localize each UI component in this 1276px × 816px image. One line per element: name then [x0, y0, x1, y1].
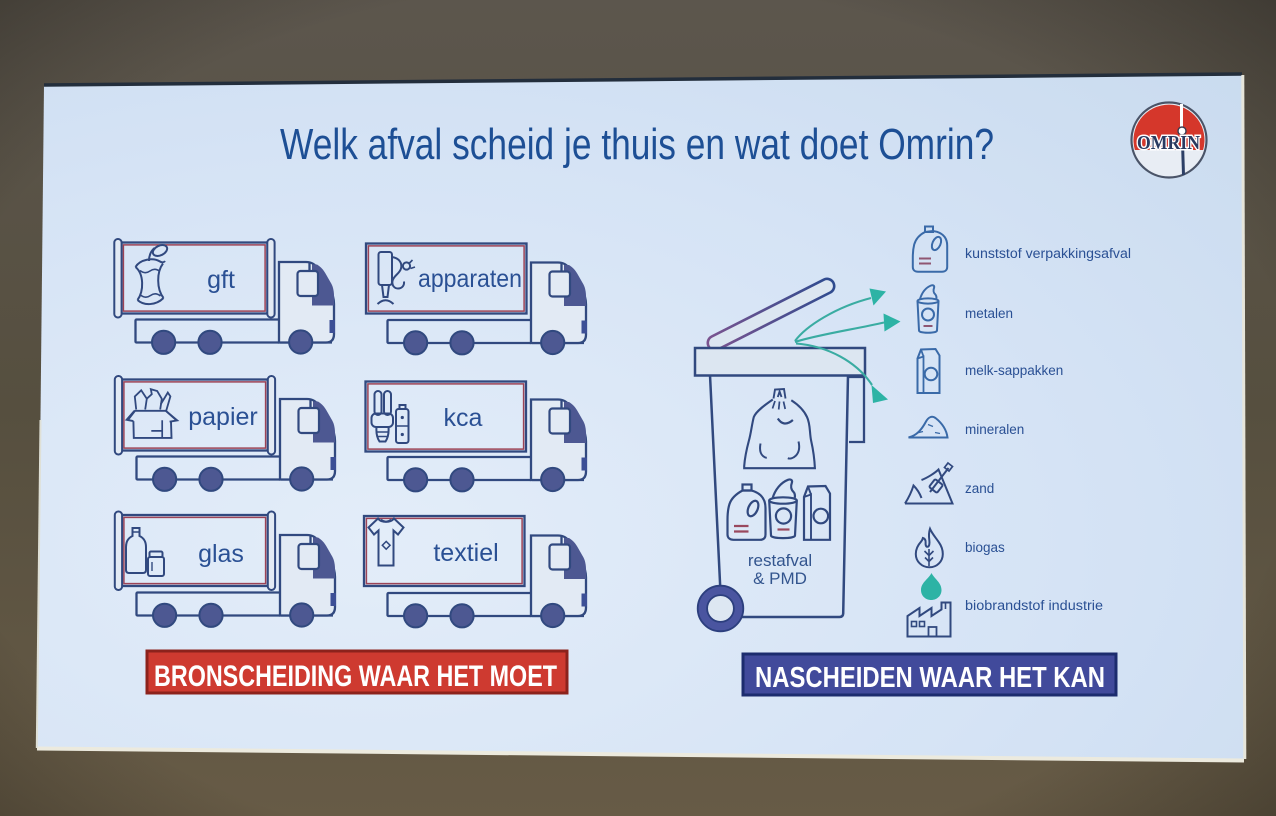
svg-text:kunststof verpakkingsafval: kunststof verpakkingsafval [965, 246, 1131, 261]
svg-text:OMRIN: OMRIN [1137, 132, 1200, 154]
svg-text:mineralen: mineralen [965, 422, 1024, 437]
svg-text:melk-sappakken: melk-sappakken [965, 363, 1063, 378]
svg-text:gft: gft [207, 266, 235, 294]
svg-text:zand: zand [965, 481, 994, 496]
svg-text:apparaten: apparaten [418, 265, 522, 293]
svg-text:restafval: restafval [748, 551, 812, 570]
svg-text:glas: glas [198, 540, 244, 568]
svg-text:papier: papier [188, 403, 258, 431]
svg-text:Welk afval scheid je thuis en: Welk afval scheid je thuis en wat doet O… [280, 120, 994, 169]
svg-text:& PMD: & PMD [753, 569, 807, 588]
svg-text:biobrandstof industrie: biobrandstof industrie [965, 598, 1103, 613]
svg-text:biogas: biogas [965, 540, 1005, 555]
svg-text:metalen: metalen [965, 306, 1013, 321]
svg-text:NASCHEIDEN WAAR HET KAN: NASCHEIDEN WAAR HET KAN [755, 662, 1105, 694]
svg-text:kca: kca [444, 404, 483, 432]
svg-text:textiel: textiel [433, 539, 498, 567]
svg-text:BRONSCHEIDING WAAR HET MOET: BRONSCHEIDING WAAR HET MOET [154, 660, 557, 693]
